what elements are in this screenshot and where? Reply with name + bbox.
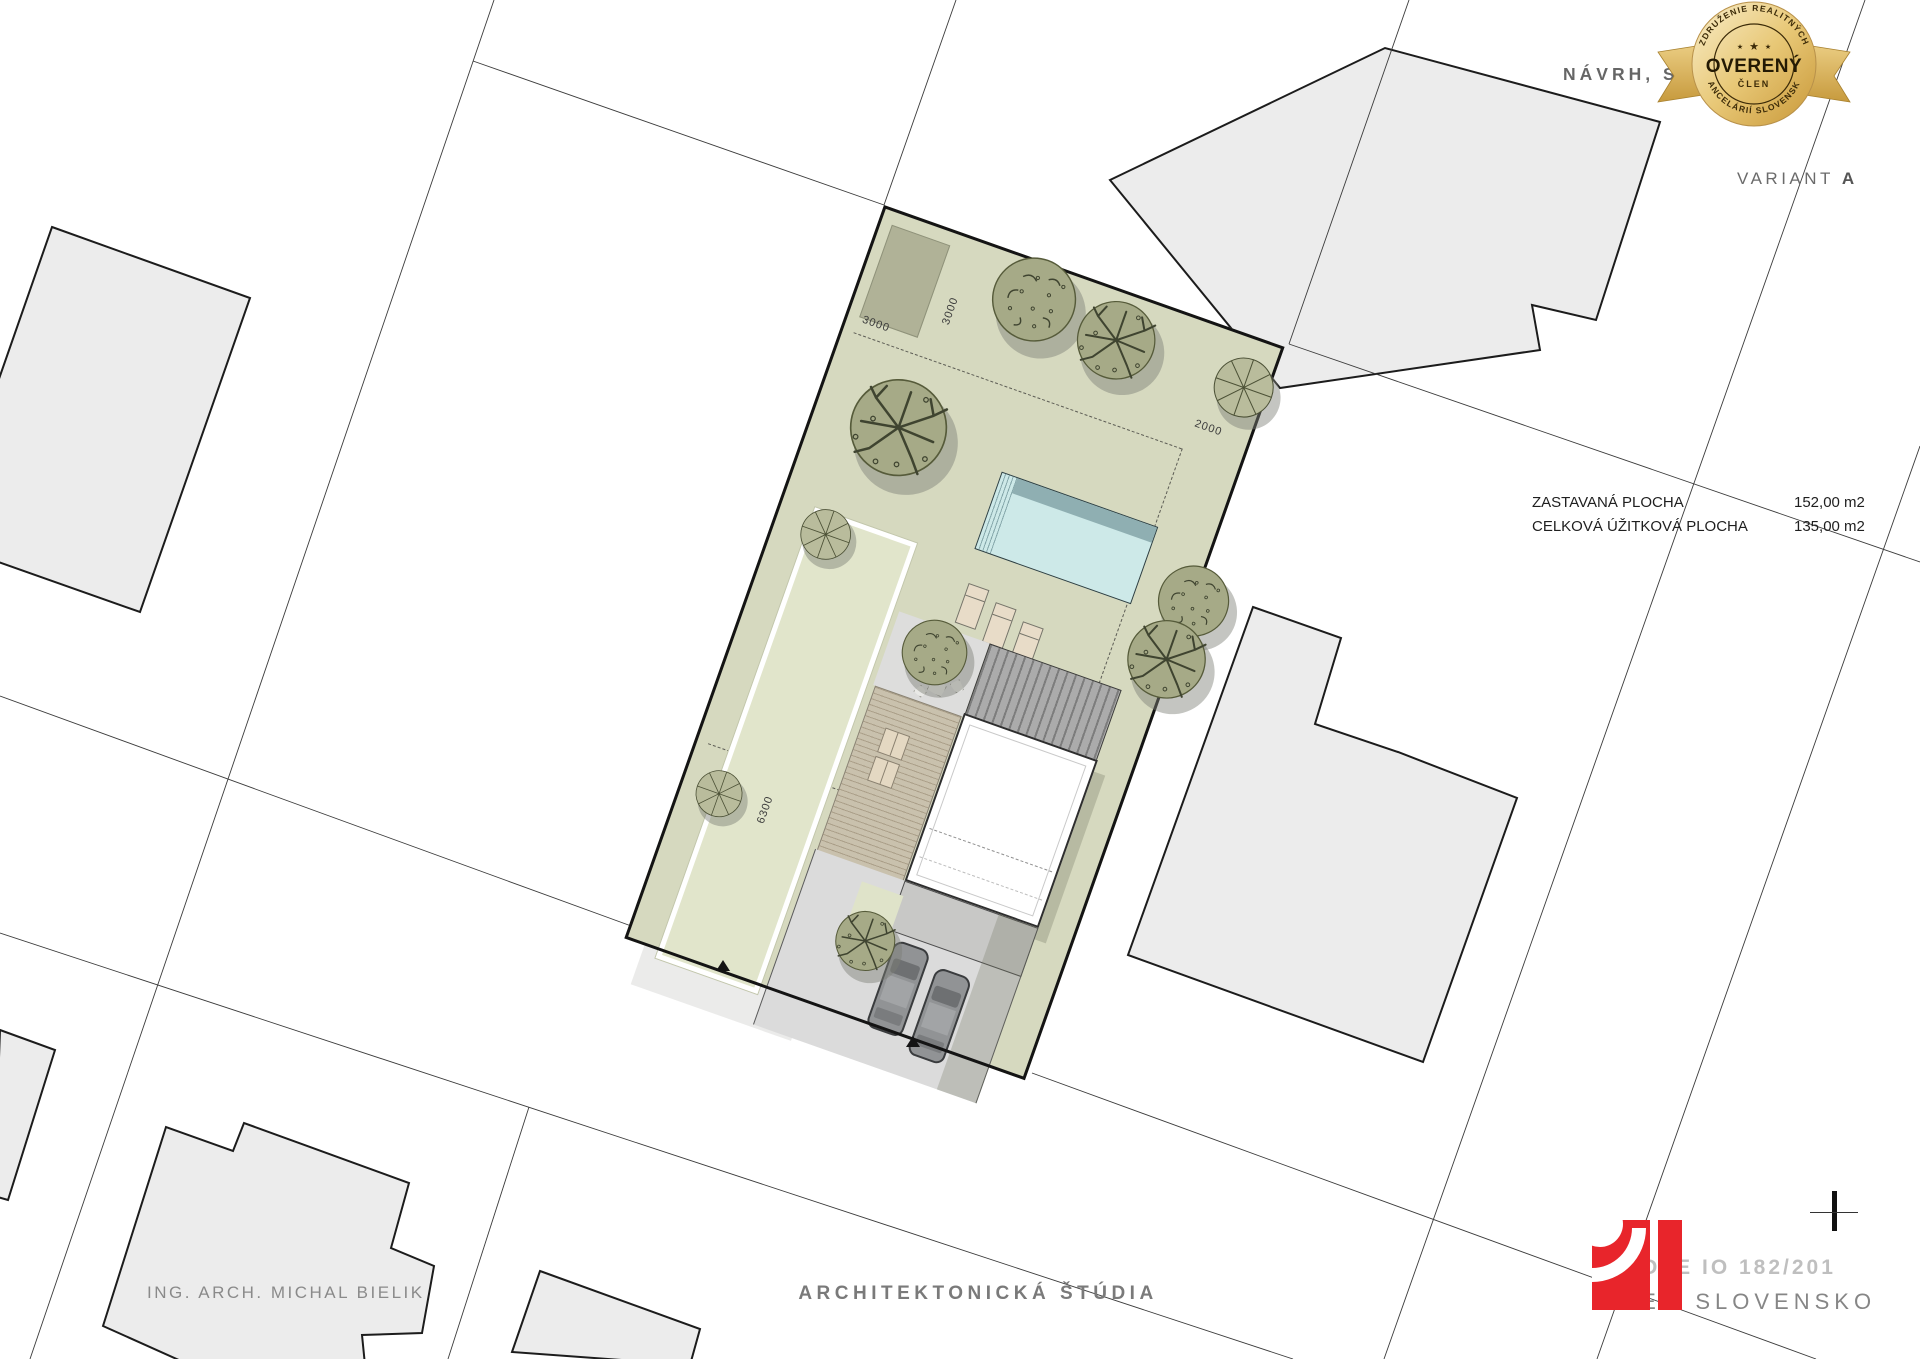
area-label: ZASTAVANÁ PLOCHA (1532, 494, 1794, 511)
tree (832, 361, 965, 494)
studio-logo (1592, 1218, 1682, 1310)
survey-cross (1832, 1191, 1837, 1231)
badge-star-icon: ★ (1765, 43, 1771, 51)
entrance-arrow (716, 960, 730, 971)
tree (1203, 347, 1285, 429)
drawing-title: ARCHITEKTONICKÁ ŠTÚDIA (798, 1283, 1157, 1305)
verified-member-badge: ZDRUŽENIE REALITNÝCH KANCELÁRIÍ SLOVENSK… (1648, 0, 1860, 134)
badge-star-icon: ★ (1749, 41, 1759, 53)
neighbor-building-left-edge (0, 1030, 55, 1200)
pool-deep-end (1012, 478, 1157, 542)
parcel-line (884, 0, 956, 205)
car-rear-window (873, 1007, 903, 1027)
area-value: 152,00 m2 (1794, 494, 1865, 511)
car-roof (921, 1002, 956, 1036)
area-summary: ZASTAVANÁ PLOCHA 152,00 m2 CELKOVÁ ÚŽITK… (1532, 494, 1865, 542)
sun-lounger (955, 583, 990, 630)
badge-sub-text: ČLEN (1738, 78, 1771, 89)
pool-steps (976, 473, 1020, 554)
variant-letter: A (1842, 169, 1858, 188)
area-row: CELKOVÁ ÚŽITKOVÁ PLOCHA 135,00 m2 (1532, 518, 1865, 535)
site-plan-page: { "header": { "navrh": "NÁVRH, S", "vari… (0, 0, 1920, 1359)
badge-star-icon: ★ (1737, 43, 1743, 51)
dimension-label: 3000 (940, 296, 961, 327)
neighbor-building-bottom-center (512, 1271, 700, 1359)
variant-word: VARIANT (1737, 169, 1834, 188)
neighbor-building-bottom-left (103, 1123, 434, 1359)
area-value: 135,00 m2 (1794, 518, 1865, 535)
badge-center-text: OVERENÝ (1706, 55, 1802, 77)
area-row: ZASTAVANÁ PLOCHA 152,00 m2 (1532, 494, 1865, 511)
dimension-label: 2000 (1193, 418, 1224, 439)
swimming-pool (974, 472, 1158, 605)
parcel-line (473, 61, 884, 205)
parcel-line (1032, 1073, 1816, 1359)
variant-label: VARIANT A (1737, 169, 1858, 189)
parcel-line (0, 696, 634, 927)
street-line (448, 1107, 529, 1359)
survey-cross-line (1810, 1212, 1858, 1213)
architect-name: ING. ARCH. MICHAL BIELIK (147, 1283, 425, 1303)
neighbor-building-top-left (0, 227, 250, 612)
area-label: CELKOVÁ ÚŽITKOVÁ PLOCHA (1532, 518, 1794, 535)
entrance-arrow (906, 1036, 920, 1047)
